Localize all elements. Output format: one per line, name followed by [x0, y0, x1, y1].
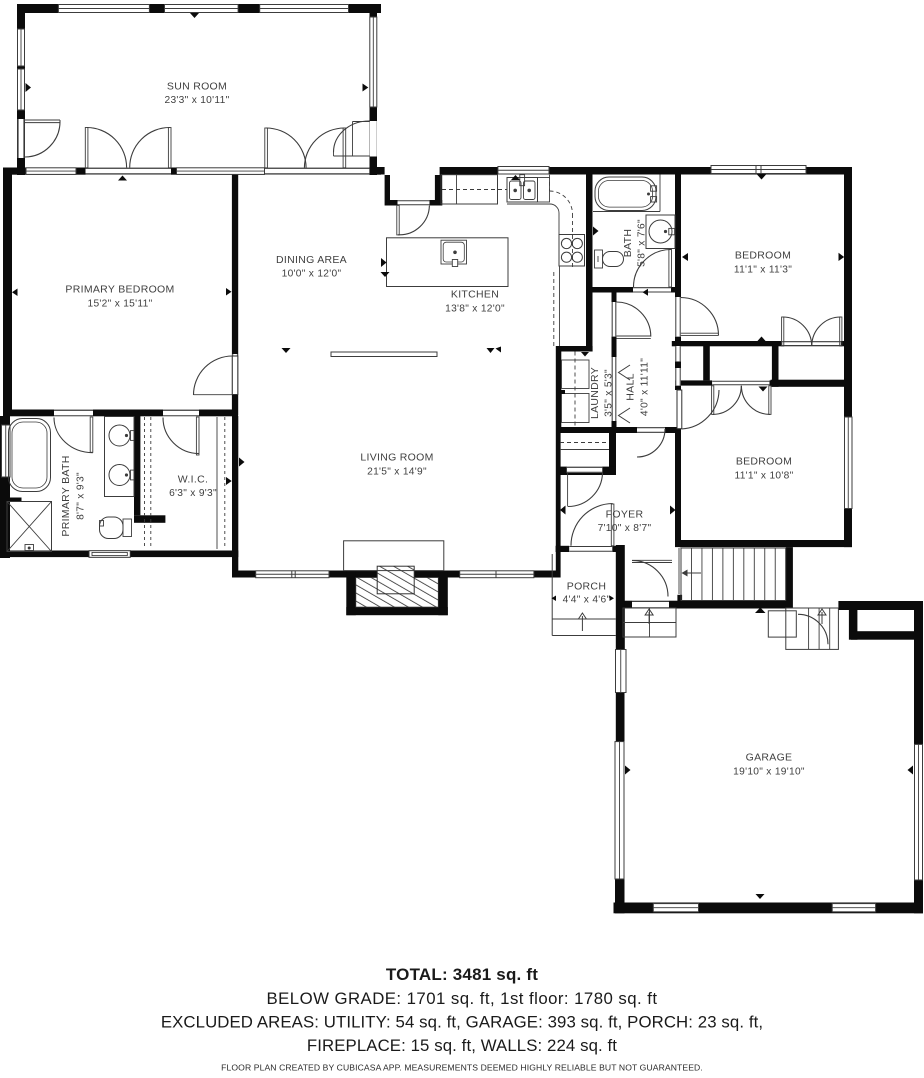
svg-text:FOYER: FOYER	[606, 509, 644, 521]
svg-text:PORCH: PORCH	[567, 581, 606, 593]
svg-text:HALL: HALL	[625, 373, 637, 400]
svg-text:SUN ROOM: SUN ROOM	[167, 81, 227, 93]
svg-text:PRIMARY BEDROOM: PRIMARY BEDROOM	[65, 284, 174, 296]
svg-text:GARAGE: GARAGE	[746, 752, 793, 764]
svg-text:LIVING ROOM: LIVING ROOM	[360, 452, 433, 464]
svg-text:FLOOR PLAN CREATED BY CUBICASA: FLOOR PLAN CREATED BY CUBICASA APP. MEAS…	[221, 1063, 703, 1073]
svg-text:LAUNDRY: LAUNDRY	[589, 367, 601, 419]
svg-text:TOTAL: 3481 sq. ft: TOTAL: 3481 sq. ft	[386, 965, 538, 984]
svg-text:DINING AREA: DINING AREA	[276, 254, 347, 266]
svg-text:EXCLUDED AREAS: UTILITY: 54 sq: EXCLUDED AREAS: UTILITY: 54 sq. ft, GARA…	[161, 1013, 763, 1032]
svg-text:FIREPLACE: 15 sq. ft, WALLS: 2: FIREPLACE: 15 sq. ft, WALLS: 224 sq. ft	[307, 1036, 617, 1055]
svg-text:W.I.C.: W.I.C.	[178, 474, 208, 486]
svg-text:BEDROOM: BEDROOM	[736, 456, 792, 468]
svg-text:3'5" x 5'3": 3'5" x 5'3"	[604, 369, 615, 417]
svg-text:KITCHEN: KITCHEN	[451, 289, 499, 301]
svg-text:4'4" x 4'6": 4'4" x 4'6"	[563, 595, 611, 606]
svg-text:7'10" x 8'7": 7'10" x 8'7"	[598, 523, 652, 534]
svg-text:15'2" x 15'11": 15'2" x 15'11"	[88, 299, 153, 310]
svg-text:11'1" x 10'8": 11'1" x 10'8"	[734, 471, 793, 482]
svg-text:BEDROOM: BEDROOM	[735, 250, 791, 262]
svg-text:BELOW GRADE: 1701 sq. ft, 1st: BELOW GRADE: 1701 sq. ft, 1st floor: 178…	[267, 989, 658, 1008]
svg-text:BATH: BATH	[622, 229, 634, 257]
svg-text:8'7" x 9'3": 8'7" x 9'3"	[76, 472, 87, 520]
svg-text:PRIMARY BATH: PRIMARY BATH	[60, 455, 72, 536]
svg-text:4'0" x 11'11": 4'0" x 11'11"	[640, 358, 651, 416]
svg-text:6'3" x 9'3": 6'3" x 9'3"	[169, 488, 217, 499]
svg-text:10'0" x 12'0": 10'0" x 12'0"	[282, 269, 342, 280]
svg-text:23'3" x 10'11": 23'3" x 10'11"	[165, 95, 230, 106]
svg-text:13'8" x 12'0": 13'8" x 12'0"	[445, 304, 505, 315]
svg-text:19'10" x 19'10": 19'10" x 19'10"	[733, 767, 805, 778]
svg-text:5'8" x 7'6": 5'8" x 7'6"	[637, 219, 648, 267]
svg-text:21'5" x 14'9": 21'5" x 14'9"	[367, 467, 427, 478]
svg-text:11'1" x 11'3": 11'1" x 11'3"	[734, 265, 792, 276]
